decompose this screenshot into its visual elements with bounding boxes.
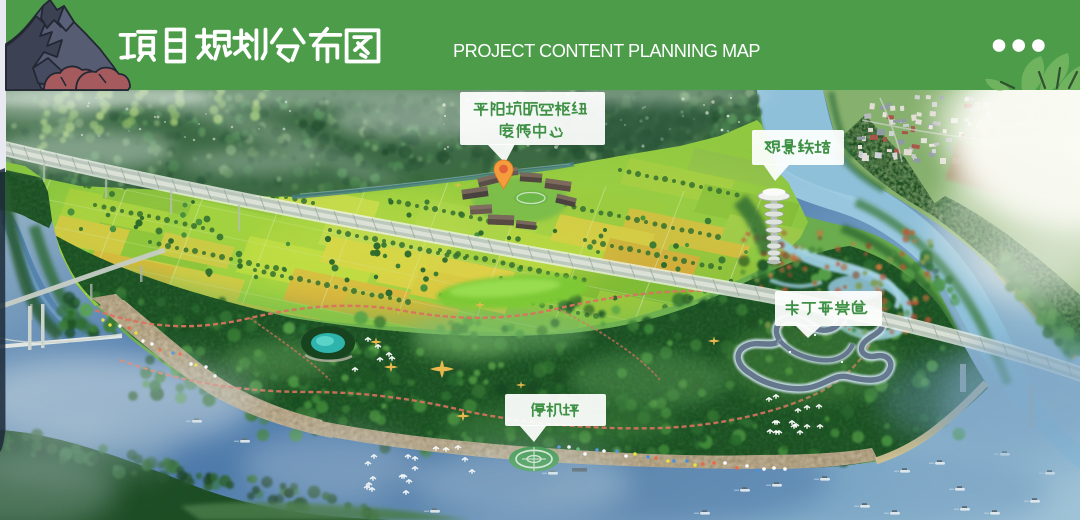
svg-text:PROJECT CONTENT PLANNING MAP: PROJECT CONTENT PLANNING MAP: [453, 41, 760, 61]
